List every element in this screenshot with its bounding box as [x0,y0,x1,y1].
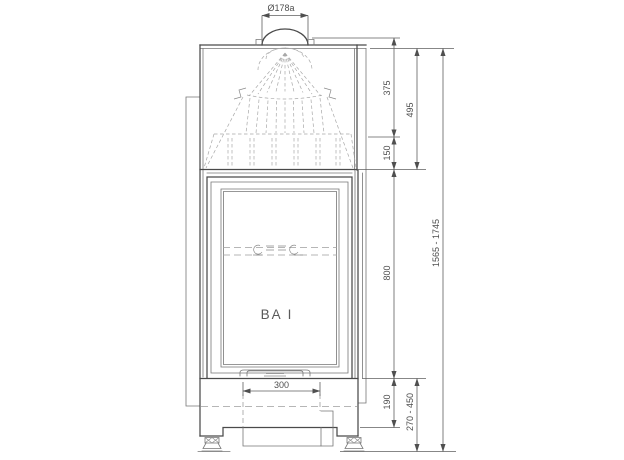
plinth-height-value: 190 [382,394,392,409]
base-range-value: 270 - 450 [405,393,415,431]
dim-hood-total-495: 495 [405,49,417,170]
mount-bracket-left [234,88,246,99]
control-levers-hidden [223,245,337,255]
dim-overall-height: 1565 - 1745 [431,49,443,452]
door-height-value: 800 [382,265,392,280]
rear-panel-right [358,49,366,404]
mount-bracket-right [324,88,336,99]
hood-interior-hidden-lines [204,48,356,168]
dim-door-height-800: 800 [382,170,394,379]
hood-lower-value: 150 [382,145,392,160]
flue-collar [256,29,314,45]
dim-base-width: 300 [243,380,320,396]
dim-hood-upper-375: 375 [382,38,394,137]
overall-height-value: 1565 - 1745 [431,219,441,267]
model-label: BA I [261,307,294,322]
rear-panel-left [186,97,200,406]
leveling-foot-right [344,438,364,452]
hood-upper-value: 375 [382,80,392,95]
dim-collar-diameter: Ø178a [262,3,308,42]
door-assembly [207,170,355,378]
collar-diameter-value: Ø178a [267,3,294,13]
hood-total-value: 495 [405,102,415,117]
lever-left [253,245,262,255]
lever-right [290,245,303,255]
fireplace-technical-drawing: BA I Ø178a 300 [0,0,624,460]
dim-plinth-190: 190 [382,379,394,428]
dim-hood-lower-150: 150 [382,137,394,170]
dim-base-range-270-450: 270 - 450 [405,379,417,452]
leveling-foot-left [202,438,222,452]
base-width-value: 300 [274,380,289,390]
drawing-svg: BA I Ø178a 300 [0,0,624,460]
